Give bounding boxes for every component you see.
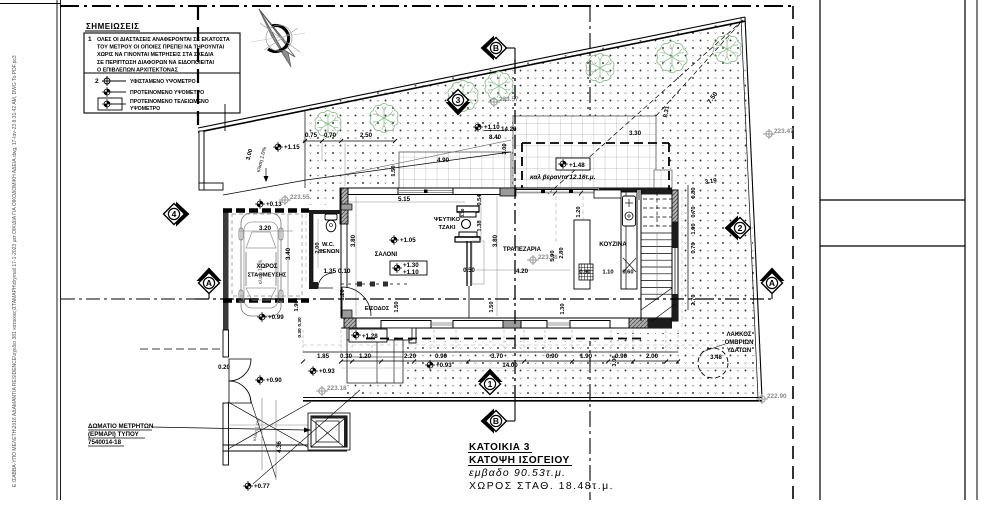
svg-text:0.90: 0.90 — [546, 353, 559, 360]
svg-text:1.30: 1.30 — [560, 303, 566, 314]
svg-text:ΥΨΟΜΕΤΡΟ: ΥΨΟΜΕΤΡΟ — [130, 106, 160, 112]
svg-text:3: 3 — [456, 95, 461, 105]
svg-text:4.36: 4.36 — [277, 441, 283, 453]
svg-text:0.30: 0.30 — [460, 208, 465, 217]
svg-text:καλ βεραντα 12.16τ.μ.: καλ βεραντα 12.16τ.μ. — [530, 173, 596, 181]
svg-text:0.54: 0.54 — [477, 194, 483, 206]
svg-text:3.80: 3.80 — [492, 234, 499, 247]
svg-text:ΟΛΕΣ ΟΙ ΔΙΑΣΤΑΣΕΙΣ ΑΝΑΦΕΡΟΝΤΑΙ: ΟΛΕΣ ΟΙ ΔΙΑΣΤΑΣΕΙΣ ΑΝΑΦΕΡΟΝΤΑΙ ΣΕ ΕΚΑΤΟΣ… — [97, 37, 230, 43]
svg-text:4.90: 4.90 — [437, 157, 450, 164]
svg-text:0.20: 0.20 — [218, 365, 230, 371]
svg-text:W.C.: W.C. — [322, 242, 335, 248]
svg-text:ΨΕΥΤΙΚΟ: ΨΕΥΤΙΚΟ — [434, 217, 460, 223]
svg-text:κλιση 1.0%: κλιση 1.0% — [258, 259, 264, 284]
svg-text:B: B — [493, 416, 499, 426]
svg-text:2.70: 2.70 — [691, 294, 697, 305]
svg-text:0.30: 0.30 — [340, 353, 353, 360]
svg-text:ΣΗΜΕΙΩΣΕΙΣ: ΣΗΜΕΙΩΣΕΙΣ — [86, 22, 139, 31]
svg-text:2: 2 — [95, 78, 99, 85]
svg-text:+1.15: +1.15 — [284, 144, 300, 151]
svg-text:ΤΖΑΚΙ: ΤΖΑΚΙ — [438, 225, 455, 231]
svg-text:223.18: 223.18 — [327, 385, 347, 392]
svg-text:Ο ΕΠΙΒΛΕΠΩΝ ΑΡΧΙΤΕΚΤΟΝΑΣ: Ο ΕΠΙΒΛΕΠΩΝ ΑΡΧΙΤΕΚΤΟΝΑΣ — [97, 67, 179, 73]
svg-text:3.20: 3.20 — [259, 225, 272, 232]
svg-text:4.20: 4.20 — [516, 268, 529, 275]
svg-text:8.40: 8.40 — [489, 134, 502, 141]
svg-text:1.90: 1.90 — [580, 353, 593, 360]
svg-text:2.50: 2.50 — [360, 132, 373, 139]
svg-text:ΥΦΙΣΤΑΜΕΝΟ ΥΨΟΜΕΤΡΟ: ΥΦΙΣΤΑΜΕΝΟ ΥΨΟΜΕΤΡΟ — [130, 79, 196, 85]
svg-text:ΚΟΥΖΙΝΑ: ΚΟΥΖΙΝΑ — [599, 241, 627, 248]
svg-text:1.50: 1.50 — [394, 301, 400, 312]
svg-text:3.70: 3.70 — [491, 353, 504, 360]
svg-text:+1.10: +1.10 — [403, 269, 419, 276]
svg-text:+1.05: +1.05 — [400, 237, 416, 244]
svg-text:3.30: 3.30 — [629, 130, 642, 137]
svg-text:ΚΑΤΟΙΚΙΑ 3: ΚΑΤΟΙΚΙΑ 3 — [469, 442, 530, 453]
svg-text:1.50: 1.50 — [489, 301, 495, 312]
svg-text:ΥΔΑΤΩΝ: ΥΔΑΤΩΝ — [727, 348, 751, 354]
svg-text:A: A — [769, 278, 775, 288]
svg-text:223.55: 223.55 — [290, 194, 310, 201]
svg-text:ΣΤΑΘΜΕΥΣΗΣ: ΣΤΑΘΜΕΥΣΗΣ — [248, 273, 287, 279]
svg-text:1: 1 — [88, 36, 92, 43]
svg-text:1.20: 1.20 — [576, 206, 582, 217]
svg-text:7540014-18: 7540014-18 — [88, 439, 122, 446]
svg-text:+0.77: +0.77 — [254, 483, 270, 490]
svg-text:3.40: 3.40 — [285, 247, 292, 260]
svg-text:0.90: 0.90 — [579, 270, 590, 276]
svg-text:3.00: 3.00 — [502, 143, 508, 154]
svg-text:ΤΡΑΠΕΖΑΡΙΑ: ΤΡΑΠΕΖΑΡΙΑ — [503, 247, 542, 253]
svg-text:3.06: 3.06 — [612, 355, 618, 367]
svg-text:0.50: 0.50 — [463, 268, 475, 274]
svg-text:0.90: 0.90 — [435, 353, 448, 360]
svg-text:2.80: 2.80 — [559, 247, 565, 258]
svg-text:ΣΑΛΟΝΙ: ΣΑΛΟΝΙ — [375, 252, 398, 258]
svg-text:+0.90: +0.90 — [266, 377, 282, 384]
svg-text:1.10: 1.10 — [602, 270, 613, 276]
svg-text:ΔΩΜΑΤΙΟ ΜΕΤΡΗΤΩΝ: ΔΩΜΑΤΙΟ ΜΕΤΡΗΤΩΝ — [88, 423, 154, 430]
svg-text:2.00: 2.00 — [646, 353, 659, 360]
svg-text:1.85: 1.85 — [317, 353, 330, 360]
svg-text:0.80: 0.80 — [691, 187, 697, 198]
svg-text:+0.99: +0.99 — [268, 314, 284, 321]
svg-text:+0.93: +0.93 — [319, 368, 335, 375]
svg-text:1.50: 1.50 — [391, 165, 397, 176]
svg-text:5.90: 5.90 — [550, 250, 556, 261]
svg-text:ΕΙΣΟΔΟΣ: ΕΙΣΟΔΟΣ — [365, 306, 390, 312]
svg-text:A: A — [206, 278, 212, 288]
svg-text:223.57: 223.57 — [499, 96, 519, 103]
svg-text:+1.10: +1.10 — [484, 124, 500, 131]
svg-text:0.70: 0.70 — [324, 132, 337, 139]
svg-text:2.20: 2.20 — [404, 353, 417, 360]
svg-text:1.35 0.10: 1.35 0.10 — [323, 268, 350, 275]
svg-text:1: 1 — [488, 379, 493, 389]
svg-text:0.60: 0.60 — [622, 270, 633, 276]
svg-text:εμβαδο 90.53τ.μ.: εμβαδο 90.53τ.μ. — [469, 468, 566, 479]
svg-text:2: 2 — [738, 223, 743, 233]
svg-text:ΠΡΟΤΕΙΝΟΜΕΝΟ ΥΨΟΜΕΤΡΟ: ΠΡΟΤΕΙΝΟΜΕΝΟ ΥΨΟΜΕΤΡΟ — [130, 90, 204, 96]
svg-text:+0.13: +0.13 — [266, 201, 282, 208]
svg-text:ΚΑΤΟΨΗ ΙΣΟΓΕΙΟΥ: ΚΑΤΟΨΗ ΙΣΟΓΕΙΟΥ — [469, 455, 570, 466]
svg-text:0.30: 0.30 — [297, 317, 303, 327]
svg-text:ΤΟΥ ΜΕΤΡΟΥ ΟΙ ΟΠΟΙΕΣ ΠΡΕΠΕΙ ΝΑ: ΤΟΥ ΜΕΤΡΟΥ ΟΙ ΟΠΟΙΕΣ ΠΡΕΠΕΙ ΝΑ ΤΗΡΟΥΝΤΑΙ — [97, 45, 225, 51]
svg-text:0.70: 0.70 — [691, 242, 697, 253]
svg-text:ΞΕΝΩΝ: ΞΕΝΩΝ — [319, 249, 340, 255]
svg-text:1.00: 1.00 — [691, 223, 697, 234]
svg-text:1.20: 1.20 — [359, 353, 372, 360]
svg-text:1.38: 1.38 — [477, 220, 483, 232]
svg-text:3.48: 3.48 — [710, 355, 722, 361]
svg-text:ΛΑΚΚΟΣ: ΛΑΚΚΟΣ — [727, 332, 752, 338]
svg-text:B: B — [493, 43, 499, 53]
svg-text:222.90: 222.90 — [767, 393, 787, 400]
svg-text:4: 4 — [172, 209, 177, 219]
svg-text:ΧΩΡΟΣ ΣΤΑΘ. 18.48τ.μ.: ΧΩΡΟΣ ΣΤΑΘ. 18.48τ.μ. — [469, 481, 614, 492]
svg-text:+1.48: +1.48 — [569, 162, 585, 169]
svg-text:0.30: 0.30 — [297, 328, 303, 338]
svg-text:ΧΩΡΙΣ ΝΑ ΓΙΝΟΝΤΑΙ ΜΕΤΡΗΣΕΙΣ ΣΤ: ΧΩΡΙΣ ΝΑ ΓΙΝΟΝΤΑΙ ΜΕΤΡΗΣΕΙΣ ΣΤΑ ΣΧΕΔΙΑ — [97, 52, 214, 58]
svg-text:0.70: 0.70 — [691, 206, 697, 217]
svg-text:Ε:\ΣΑΒΒΑ-ΥΠΟ ΜΕΛΕΤΗ\2016 ΑΔΑΜΑ: Ε:\ΣΑΒΒΑ-ΥΠΟ ΜΕΛΕΤΗ\2016 ΑΔΑΜΑΝΤΙΑ RESID… — [12, 55, 18, 487]
svg-text:+1.30: +1.30 — [403, 262, 419, 269]
svg-text:(ΕΡΜΑΡΙ) ΤΥΠΟΥ: (ΕΡΜΑΡΙ) ΤΥΠΟΥ — [88, 431, 140, 438]
svg-text:0.75: 0.75 — [305, 132, 318, 139]
svg-text:223.47: 223.47 — [774, 128, 794, 135]
svg-text:1.90: 1.90 — [294, 301, 300, 312]
